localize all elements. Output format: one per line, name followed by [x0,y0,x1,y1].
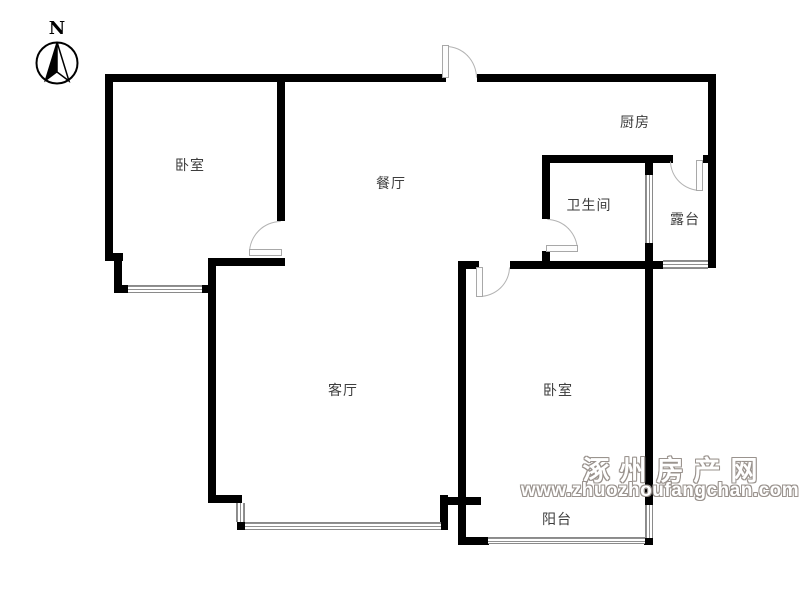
door-bedroom1-leaf [249,249,282,256]
room-label-terrace: 露台 [670,209,700,229]
wall-bedroom1-bottom [208,258,285,266]
wall-bedroom1-right [277,74,285,221]
room-label-balcony: 阳台 [542,509,572,529]
wall-living-bottom [208,495,242,503]
window-bedroom1-bay [128,285,202,293]
door-bedroom2-arc [479,267,510,297]
floorplan-canvas: N [0,0,800,600]
wall-top-left [105,74,446,82]
wall-kitchen-bottom-stub [703,155,716,163]
door-bathroom-leaf [546,245,578,252]
door-entrance-leaf [442,45,449,78]
room-label-kitchen: 厨房 [620,112,650,132]
wall-bathroom-left-top [542,155,550,219]
room-label-bedroom2: 卧室 [543,380,573,400]
door-entrance-arc [446,46,477,78]
wall-bathroom-terrace-top [645,155,653,176]
watermark-site-url: www.zhuozhoufangchan.com [512,480,800,502]
window-living-side [236,503,245,522]
window-terrace-bottom [663,260,708,269]
room-label-dining: 餐厅 [376,173,406,193]
wall-balcony-bottom-right [644,537,653,545]
wall-middle-right [510,261,663,269]
door-kitchen-leaf [696,160,703,191]
wall-right-outer [708,74,716,268]
door-bedroom2-leaf [476,267,483,297]
window-bathroom-terrace [645,175,653,243]
wall-left-outer [105,74,113,261]
wall-kitchen-bottom [542,155,673,163]
compass-icon [34,40,80,86]
window-living-bottom [245,522,441,530]
wall-living-left [208,258,216,503]
room-label-bathroom: 卫生间 [567,195,612,215]
wall-balcony-bottom-left [458,537,489,545]
wall-top-right [477,74,716,82]
window-balcony-bottom [488,537,645,544]
wall-divider [458,261,466,503]
room-label-living: 客厅 [328,380,358,400]
room-label-bedroom1: 卧室 [175,155,205,175]
compass-north-label: N [49,18,65,39]
window-balcony-right [645,505,653,538]
